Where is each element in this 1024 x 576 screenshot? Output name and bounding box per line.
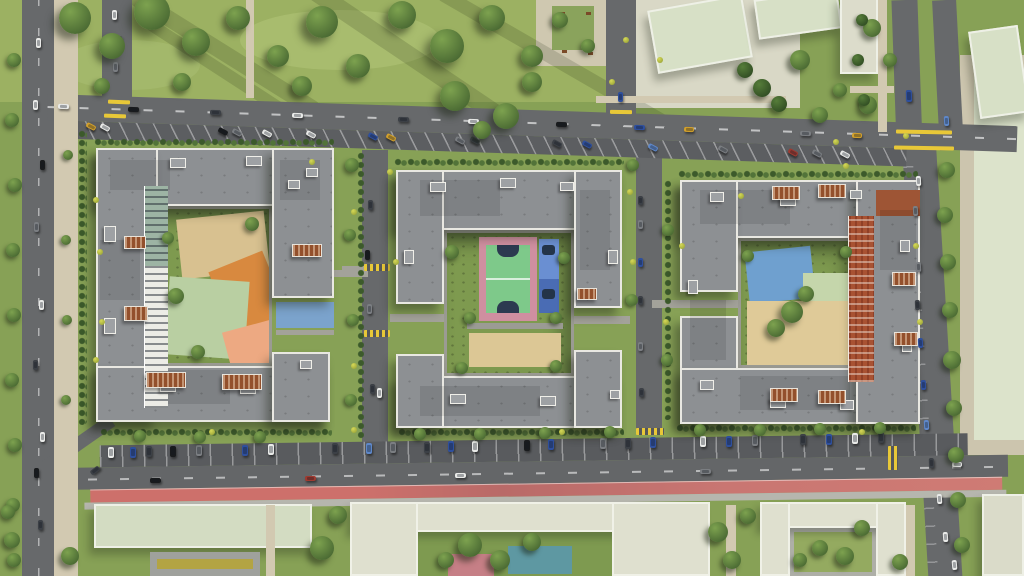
tree	[854, 520, 870, 536]
roof-structure	[900, 240, 910, 252]
roof-structure	[288, 180, 300, 189]
bush	[738, 193, 744, 199]
tree	[344, 229, 356, 241]
tree	[856, 14, 868, 26]
tree	[62, 315, 72, 325]
sport-pad-mark-2	[542, 289, 555, 299]
car	[398, 117, 409, 122]
car	[34, 468, 39, 478]
hedge-row	[357, 152, 364, 440]
car	[368, 200, 373, 210]
bush	[351, 363, 357, 369]
car	[943, 532, 949, 542]
car	[952, 560, 958, 570]
tree	[858, 94, 870, 106]
footpath	[266, 505, 275, 576]
sport-pad-mark-1	[542, 245, 555, 255]
bush	[833, 139, 839, 145]
car	[365, 250, 370, 260]
tree	[883, 53, 897, 67]
car	[146, 446, 152, 457]
footpath	[596, 96, 786, 103]
tree	[742, 250, 754, 262]
tree	[414, 428, 426, 440]
tree	[388, 1, 416, 29]
car	[292, 113, 303, 118]
tree	[940, 254, 956, 270]
bush	[393, 259, 399, 265]
bush	[917, 319, 923, 325]
hedge-row	[78, 130, 87, 425]
car	[548, 439, 554, 450]
car	[150, 478, 161, 483]
car	[367, 304, 372, 314]
playground-pink-bottom	[448, 554, 494, 576]
bush	[679, 243, 685, 249]
roof-structure	[560, 182, 574, 191]
sport-court-key-bottom	[497, 301, 519, 313]
entrance-pergola	[222, 374, 262, 390]
tree	[310, 536, 334, 560]
tree	[5, 373, 19, 387]
car	[242, 445, 248, 456]
tree	[94, 78, 110, 94]
footpath	[906, 505, 915, 576]
bush	[387, 169, 393, 175]
tree	[7, 553, 21, 567]
courtyard-2-path	[467, 323, 563, 329]
bench	[562, 50, 567, 53]
tree	[521, 45, 543, 67]
tree	[6, 243, 20, 257]
car	[370, 384, 375, 394]
building-2-arm-bottom-right	[574, 350, 622, 428]
road-marking-yellow	[364, 330, 390, 337]
tree	[790, 50, 810, 70]
tree	[852, 54, 864, 66]
car	[634, 125, 645, 130]
roof-structure	[710, 192, 724, 202]
tree	[892, 554, 908, 570]
car	[268, 444, 274, 455]
entrance-pergola	[892, 272, 916, 286]
car	[472, 441, 478, 452]
tree	[836, 547, 854, 565]
hedge-row	[94, 138, 334, 146]
road-marking-yellow	[364, 264, 390, 271]
entrance-pergola	[146, 372, 186, 388]
tree	[8, 178, 22, 192]
tree	[550, 312, 562, 324]
tree	[474, 428, 486, 440]
tree	[5, 113, 19, 127]
entrance-pergola	[292, 244, 322, 257]
car	[618, 92, 623, 102]
roof-patch	[690, 300, 726, 360]
roof-structure	[850, 190, 862, 199]
tree	[740, 508, 756, 524]
tree	[539, 427, 551, 439]
tree	[440, 81, 470, 111]
hedge-row	[664, 180, 671, 420]
car	[638, 342, 643, 351]
tree	[4, 532, 20, 548]
car	[625, 438, 631, 449]
tree	[814, 423, 826, 435]
bush	[351, 209, 357, 215]
car	[112, 10, 117, 20]
car	[455, 473, 466, 478]
building-bottom-far-right	[982, 494, 1024, 576]
bush	[609, 79, 615, 85]
tree	[939, 162, 955, 178]
tree	[61, 547, 79, 565]
bush	[859, 429, 865, 435]
tree	[661, 354, 673, 366]
car	[556, 122, 567, 127]
pale-building-top-2	[754, 0, 843, 40]
car	[700, 436, 706, 447]
entrance-pergola	[894, 332, 918, 346]
building-bottom-right	[760, 502, 906, 576]
car	[852, 133, 862, 138]
tree	[552, 12, 568, 28]
car	[38, 520, 43, 530]
bush	[843, 163, 849, 169]
bottom-right-band-left	[760, 502, 790, 576]
playground-blue-1	[276, 302, 334, 328]
bush	[93, 197, 99, 203]
tree	[345, 158, 359, 172]
roof-structure	[608, 250, 618, 264]
car	[826, 434, 832, 445]
tree	[943, 351, 961, 369]
car	[33, 360, 38, 370]
tree	[464, 312, 476, 324]
tree	[345, 394, 357, 406]
sports-court-bottom-left	[150, 552, 260, 576]
tree	[267, 45, 289, 67]
car	[424, 442, 430, 453]
tree	[346, 54, 370, 78]
bush	[93, 357, 99, 363]
entrance-pergola	[770, 388, 798, 402]
entrance-pergola	[818, 184, 846, 198]
car	[639, 388, 644, 397]
tree	[347, 314, 359, 326]
car	[916, 176, 922, 186]
tree	[550, 360, 562, 372]
tree	[522, 72, 542, 92]
tree	[753, 79, 771, 97]
car	[684, 127, 694, 132]
bench	[586, 12, 591, 15]
car	[915, 300, 921, 310]
roof-structure	[104, 318, 116, 334]
car	[130, 447, 136, 458]
car	[929, 458, 935, 468]
roof-structure	[610, 390, 620, 399]
roof-patch	[880, 210, 916, 270]
tree	[458, 533, 482, 557]
entrance-pergola	[772, 186, 800, 200]
tree	[479, 5, 505, 31]
tree	[8, 438, 22, 452]
car	[40, 432, 45, 442]
roof-structure	[404, 250, 414, 264]
car	[39, 300, 44, 310]
tree	[840, 246, 852, 258]
hedge-row	[678, 170, 918, 178]
tree	[182, 28, 210, 56]
roof-structure	[104, 226, 116, 242]
tree	[946, 400, 962, 416]
car	[128, 107, 139, 112]
tree	[61, 395, 71, 405]
roof-structure	[500, 178, 516, 188]
roof-patch	[420, 386, 540, 416]
roof-structure	[688, 280, 698, 294]
hedge-row	[398, 428, 624, 437]
tree	[523, 533, 541, 551]
hedge-row	[394, 158, 624, 166]
car	[108, 447, 114, 458]
tree	[812, 107, 828, 123]
tree	[694, 424, 706, 436]
tree	[430, 29, 464, 63]
car	[36, 38, 41, 48]
tree	[558, 252, 570, 264]
tree	[793, 553, 807, 567]
courtyard-2	[444, 230, 574, 376]
roof-structure	[430, 182, 446, 192]
tree	[194, 431, 206, 443]
tree	[948, 447, 964, 463]
road-marking-yellow	[108, 100, 130, 105]
tree	[292, 76, 312, 96]
bush	[309, 159, 315, 165]
car	[700, 469, 711, 474]
entrance-pergola	[124, 236, 146, 249]
bush	[559, 429, 565, 435]
tree	[581, 39, 595, 53]
tree	[245, 217, 259, 231]
bush	[630, 259, 636, 265]
tree	[438, 552, 454, 568]
tree	[134, 430, 146, 442]
car	[726, 436, 732, 447]
tree	[1, 505, 15, 519]
car	[650, 437, 656, 448]
tree	[662, 224, 674, 236]
tree	[771, 96, 787, 112]
roof-structure	[306, 168, 318, 177]
car	[113, 62, 118, 72]
car	[944, 116, 950, 126]
car	[913, 206, 919, 216]
tree	[798, 286, 814, 302]
bush	[99, 319, 105, 325]
bush	[351, 427, 357, 433]
car	[800, 131, 811, 136]
car	[305, 476, 316, 481]
car	[752, 435, 758, 446]
tree	[708, 522, 728, 542]
street-internal-west	[362, 150, 388, 446]
car	[918, 338, 924, 348]
tree	[723, 551, 741, 569]
car	[390, 442, 396, 453]
car	[524, 440, 530, 451]
roof-patch	[100, 240, 140, 300]
tree	[7, 53, 21, 67]
tree	[7, 308, 21, 322]
tree	[168, 288, 184, 304]
playground-teal-bottom	[508, 546, 572, 574]
bush	[903, 133, 909, 139]
car	[921, 380, 927, 390]
sport-court-key-top	[497, 245, 519, 257]
car	[33, 100, 38, 110]
car	[906, 90, 912, 102]
tree	[173, 73, 191, 91]
tree	[162, 232, 174, 244]
car	[366, 443, 372, 454]
tree	[737, 62, 753, 78]
car	[58, 104, 69, 109]
roof-structure	[246, 156, 262, 166]
entrance-pergola	[124, 306, 148, 321]
building-3-brick-facade	[848, 216, 874, 382]
car	[448, 441, 454, 452]
car	[800, 434, 806, 445]
road-marking-yellow	[636, 428, 664, 435]
footpath	[390, 314, 444, 322]
roof-patch	[580, 190, 610, 270]
roof-structure	[170, 158, 186, 168]
tree	[942, 302, 958, 318]
road-left-avenue	[22, 0, 54, 576]
tree	[490, 550, 510, 570]
car	[34, 222, 39, 232]
tree	[445, 245, 459, 259]
bush	[623, 37, 629, 43]
tree	[99, 33, 125, 59]
car	[196, 445, 202, 456]
road-marking-yellow	[888, 446, 898, 470]
bottom-middle-band-left	[350, 502, 418, 576]
tree	[626, 294, 638, 306]
roof-structure	[540, 396, 556, 406]
tree	[781, 301, 803, 323]
playground-sand-2	[469, 333, 561, 367]
tree	[254, 431, 266, 443]
car	[638, 196, 643, 205]
car	[852, 433, 858, 444]
car	[916, 262, 922, 272]
bottom-middle-band-right	[612, 502, 710, 576]
footpath	[276, 330, 334, 335]
road-marking-yellow	[104, 114, 126, 119]
tree	[754, 424, 766, 436]
tree	[954, 537, 970, 553]
car	[600, 438, 606, 449]
tree	[812, 540, 828, 556]
roof-structure	[450, 394, 466, 404]
tree	[59, 2, 91, 34]
car	[170, 446, 176, 457]
tree	[937, 207, 953, 223]
tree	[627, 159, 639, 171]
bush	[913, 243, 919, 249]
roof-structure	[700, 380, 714, 390]
road-marking-yellow	[610, 110, 632, 114]
sidewalk-left	[54, 0, 78, 576]
tree	[63, 150, 73, 160]
tree	[226, 6, 250, 30]
tree	[604, 426, 616, 438]
building-bottom-left	[94, 504, 312, 548]
road-top-middle-stub	[606, 0, 636, 122]
footpath	[574, 316, 630, 324]
tree	[833, 83, 847, 97]
bush	[97, 249, 103, 255]
footpath	[850, 86, 894, 93]
car	[638, 220, 643, 229]
entrance-pergola	[577, 288, 597, 300]
bush	[209, 429, 215, 435]
sport-court-midline	[486, 278, 530, 280]
tree	[950, 492, 966, 508]
bush	[663, 319, 669, 325]
car	[377, 388, 382, 398]
tree	[306, 6, 338, 38]
tree	[456, 362, 468, 374]
car	[332, 443, 338, 454]
tree	[767, 319, 785, 337]
car	[210, 110, 221, 115]
tree	[493, 103, 519, 129]
tree	[874, 422, 886, 434]
car	[937, 494, 943, 504]
bush	[627, 189, 633, 195]
tree	[473, 121, 491, 139]
car	[638, 296, 643, 305]
aerial-scene	[0, 0, 1024, 576]
tree	[329, 506, 347, 524]
car	[924, 420, 930, 430]
tree	[191, 345, 205, 359]
roof-patch	[280, 160, 320, 200]
bush	[657, 57, 663, 63]
entrance-pergola	[818, 390, 846, 404]
roof-structure	[300, 360, 312, 369]
car	[638, 258, 643, 267]
tree	[61, 235, 71, 245]
car	[40, 160, 45, 170]
